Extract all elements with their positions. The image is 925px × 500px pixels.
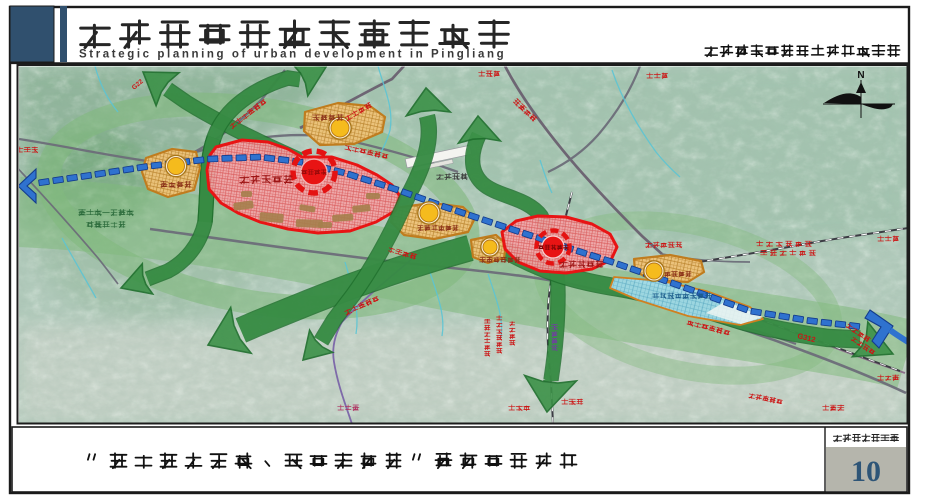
svg-text:N: N xyxy=(857,70,864,81)
svg-text:10: 10 xyxy=(851,455,881,488)
svg-text:Strategic planning of urban de: Strategic planning of urban development … xyxy=(79,49,506,61)
